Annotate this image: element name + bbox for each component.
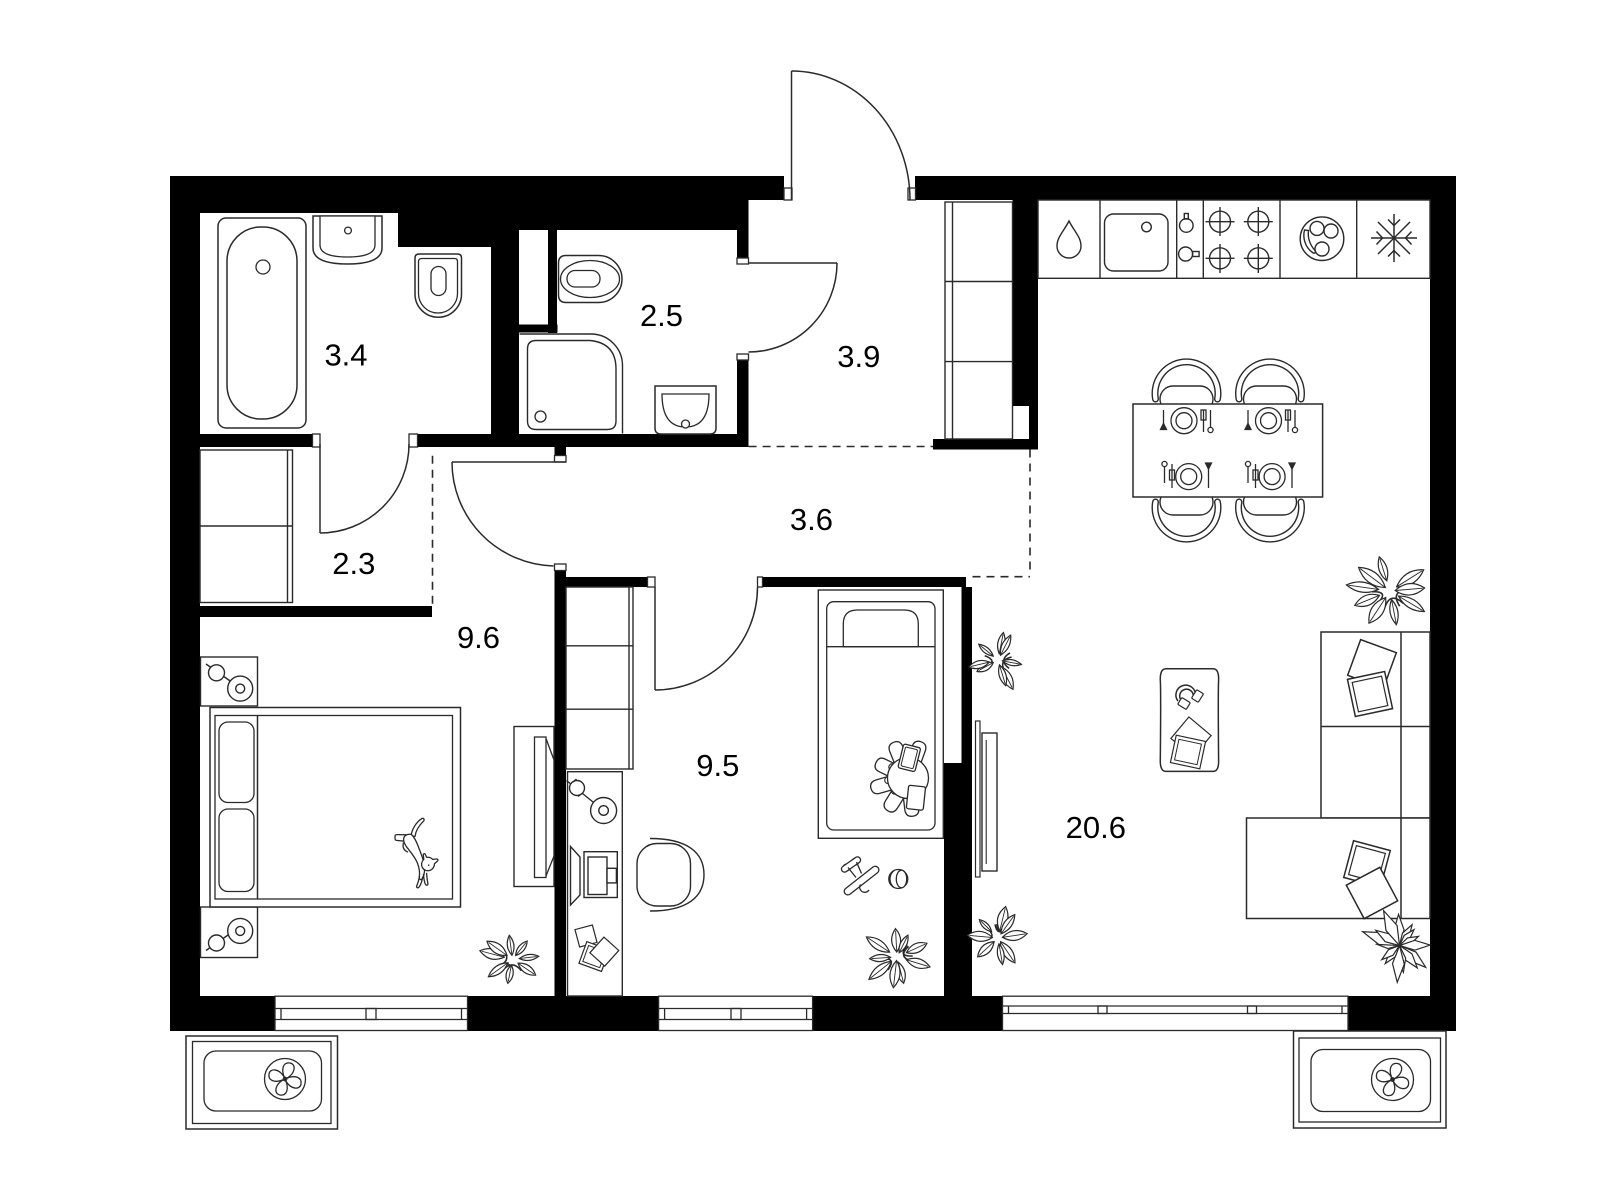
svg-text:3.4: 3.4: [324, 338, 367, 373]
svg-text:2.3: 2.3: [332, 546, 375, 581]
svg-text:9.6: 9.6: [457, 620, 500, 655]
svg-text:9.5: 9.5: [696, 748, 739, 783]
svg-text:3.9: 3.9: [837, 339, 880, 374]
svg-text:2.5: 2.5: [640, 298, 683, 333]
svg-text:3.6: 3.6: [790, 502, 833, 537]
svg-text:20.6: 20.6: [1066, 810, 1126, 845]
